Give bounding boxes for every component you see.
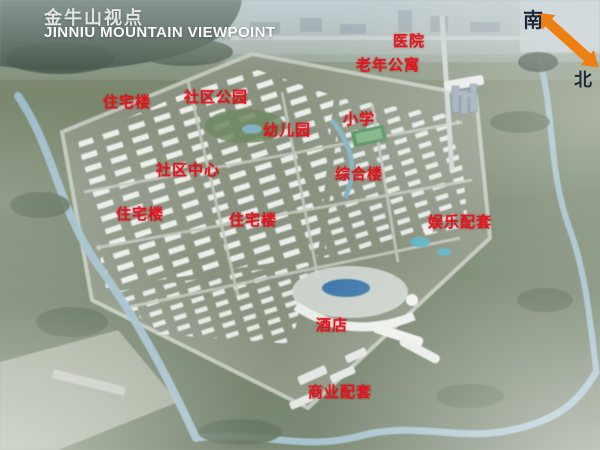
aerial-masterplan-view: 金牛山视点 JINNIU MOUNTAIN VIEWPOINT 住宅楼社区公园医… (0, 0, 600, 450)
label-community-center: 社区中心 (156, 159, 220, 180)
compass-south-label: 南 (523, 4, 543, 33)
label-residential-nw: 住宅楼 (103, 91, 151, 112)
label-senior-apartments: 老年公寓 (356, 54, 420, 75)
page-title-en: JINNIU MOUNTAIN VIEWPOINT (44, 24, 275, 41)
label-commercial-amenities: 商业配套 (308, 381, 372, 402)
label-residential-w: 住宅楼 (116, 203, 164, 224)
label-complex-building: 综合楼 (335, 163, 383, 184)
compass-north-label: 北 (574, 66, 592, 92)
label-entertainment-amenities: 娱乐配套 (428, 211, 492, 232)
label-kindergarten: 幼儿园 (263, 119, 311, 140)
label-hotel: 酒店 (316, 314, 348, 335)
label-hospital: 医院 (393, 30, 425, 51)
aerial-rendering (0, 0, 600, 450)
label-community-park: 社区公园 (184, 86, 248, 107)
label-residential-c: 住宅楼 (229, 209, 277, 230)
label-primary-school: 小学 (343, 108, 375, 129)
